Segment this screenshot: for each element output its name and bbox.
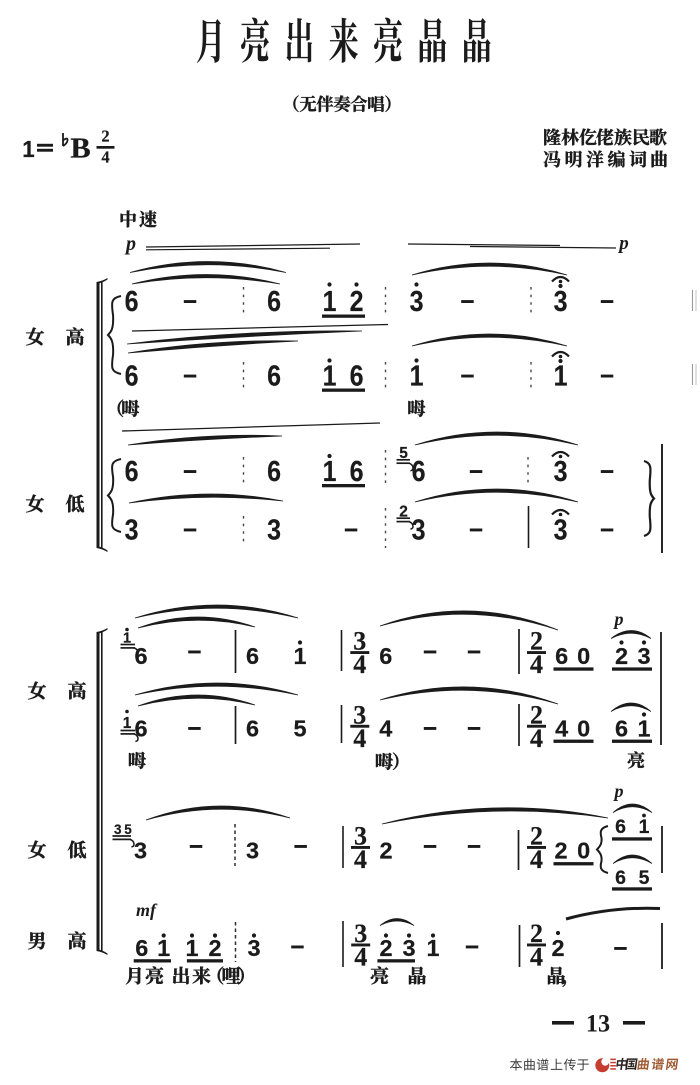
svg-text:2: 2 bbox=[208, 935, 221, 961]
svg-text:6: 6 bbox=[412, 455, 426, 487]
svg-text:6: 6 bbox=[555, 643, 568, 669]
svg-text:3: 3 bbox=[246, 838, 259, 864]
svg-text:0: 0 bbox=[577, 716, 590, 742]
svg-text:4: 4 bbox=[530, 943, 543, 972]
svg-text:3: 3 bbox=[267, 514, 281, 546]
svg-text:6: 6 bbox=[379, 643, 392, 669]
svg-text:1: 1 bbox=[426, 935, 439, 961]
svg-text:1: 1 bbox=[293, 643, 306, 669]
svg-text:6: 6 bbox=[134, 643, 147, 669]
svg-text:p: p bbox=[613, 781, 624, 801]
svg-text:1: 1 bbox=[323, 360, 337, 392]
svg-text:p: p bbox=[124, 233, 136, 255]
svg-text:1: 1 bbox=[637, 716, 650, 742]
svg-text:4: 4 bbox=[354, 943, 367, 972]
svg-text:3: 3 bbox=[402, 935, 415, 961]
svg-text:6: 6 bbox=[350, 360, 364, 392]
svg-text:6: 6 bbox=[615, 867, 626, 889]
svg-text:1: 1 bbox=[323, 455, 337, 487]
svg-text:6: 6 bbox=[125, 360, 139, 392]
svg-text:3: 3 bbox=[554, 514, 568, 546]
svg-text:3: 3 bbox=[410, 285, 424, 317]
svg-text:2: 2 bbox=[554, 838, 567, 864]
svg-text:0: 0 bbox=[577, 838, 590, 864]
svg-text:4: 4 bbox=[555, 716, 568, 742]
svg-text:2: 2 bbox=[379, 838, 392, 864]
svg-text:1: 1 bbox=[323, 285, 337, 317]
svg-text:6: 6 bbox=[125, 455, 139, 487]
svg-text:1: 1 bbox=[554, 360, 568, 392]
svg-text:4: 4 bbox=[353, 724, 366, 753]
svg-text:5: 5 bbox=[124, 822, 132, 837]
svg-text:4: 4 bbox=[101, 148, 109, 167]
svg-text:1: 1 bbox=[22, 135, 35, 162]
svg-text:2: 2 bbox=[551, 935, 564, 961]
svg-text:5: 5 bbox=[293, 716, 306, 742]
svg-text:4: 4 bbox=[530, 845, 543, 874]
svg-text:0: 0 bbox=[577, 643, 590, 669]
svg-text:3: 3 bbox=[637, 643, 650, 669]
svg-text:2: 2 bbox=[350, 285, 364, 317]
svg-text:6: 6 bbox=[246, 716, 259, 742]
svg-text:5: 5 bbox=[639, 867, 650, 889]
svg-text:3: 3 bbox=[134, 838, 147, 864]
svg-text:6: 6 bbox=[267, 455, 281, 487]
svg-text:6: 6 bbox=[615, 816, 626, 838]
svg-text:3: 3 bbox=[554, 455, 568, 487]
svg-text:6: 6 bbox=[267, 360, 281, 392]
svg-text:4: 4 bbox=[530, 724, 543, 753]
svg-text:p: p bbox=[617, 233, 629, 254]
svg-text:13: 13 bbox=[586, 1010, 610, 1038]
svg-text:2: 2 bbox=[615, 643, 628, 669]
svg-text:3: 3 bbox=[125, 514, 139, 546]
svg-text:3: 3 bbox=[412, 514, 426, 546]
svg-text:4: 4 bbox=[353, 650, 366, 679]
svg-text:p: p bbox=[613, 609, 624, 629]
svg-text:6: 6 bbox=[125, 285, 139, 317]
svg-text:1: 1 bbox=[639, 816, 650, 838]
svg-text:mf: mf bbox=[136, 900, 158, 920]
svg-text:3: 3 bbox=[554, 285, 568, 317]
svg-text:6: 6 bbox=[135, 935, 148, 961]
svg-text:4: 4 bbox=[379, 716, 392, 742]
svg-text:6: 6 bbox=[350, 455, 364, 487]
svg-text:3: 3 bbox=[114, 822, 122, 837]
svg-text:1: 1 bbox=[123, 715, 132, 732]
svg-text:B: B bbox=[70, 133, 90, 164]
svg-text:6: 6 bbox=[134, 716, 147, 742]
svg-text:4: 4 bbox=[354, 845, 367, 874]
svg-text:2: 2 bbox=[101, 127, 109, 146]
svg-text:4: 4 bbox=[530, 650, 543, 679]
svg-text:2: 2 bbox=[379, 935, 392, 961]
svg-text:1: 1 bbox=[410, 360, 424, 392]
svg-text:1: 1 bbox=[157, 935, 170, 961]
svg-text:3: 3 bbox=[247, 935, 260, 961]
svg-text:6: 6 bbox=[615, 716, 628, 742]
svg-text:6: 6 bbox=[246, 643, 259, 669]
svg-text:1: 1 bbox=[185, 935, 198, 961]
svg-text:6: 6 bbox=[267, 285, 281, 317]
